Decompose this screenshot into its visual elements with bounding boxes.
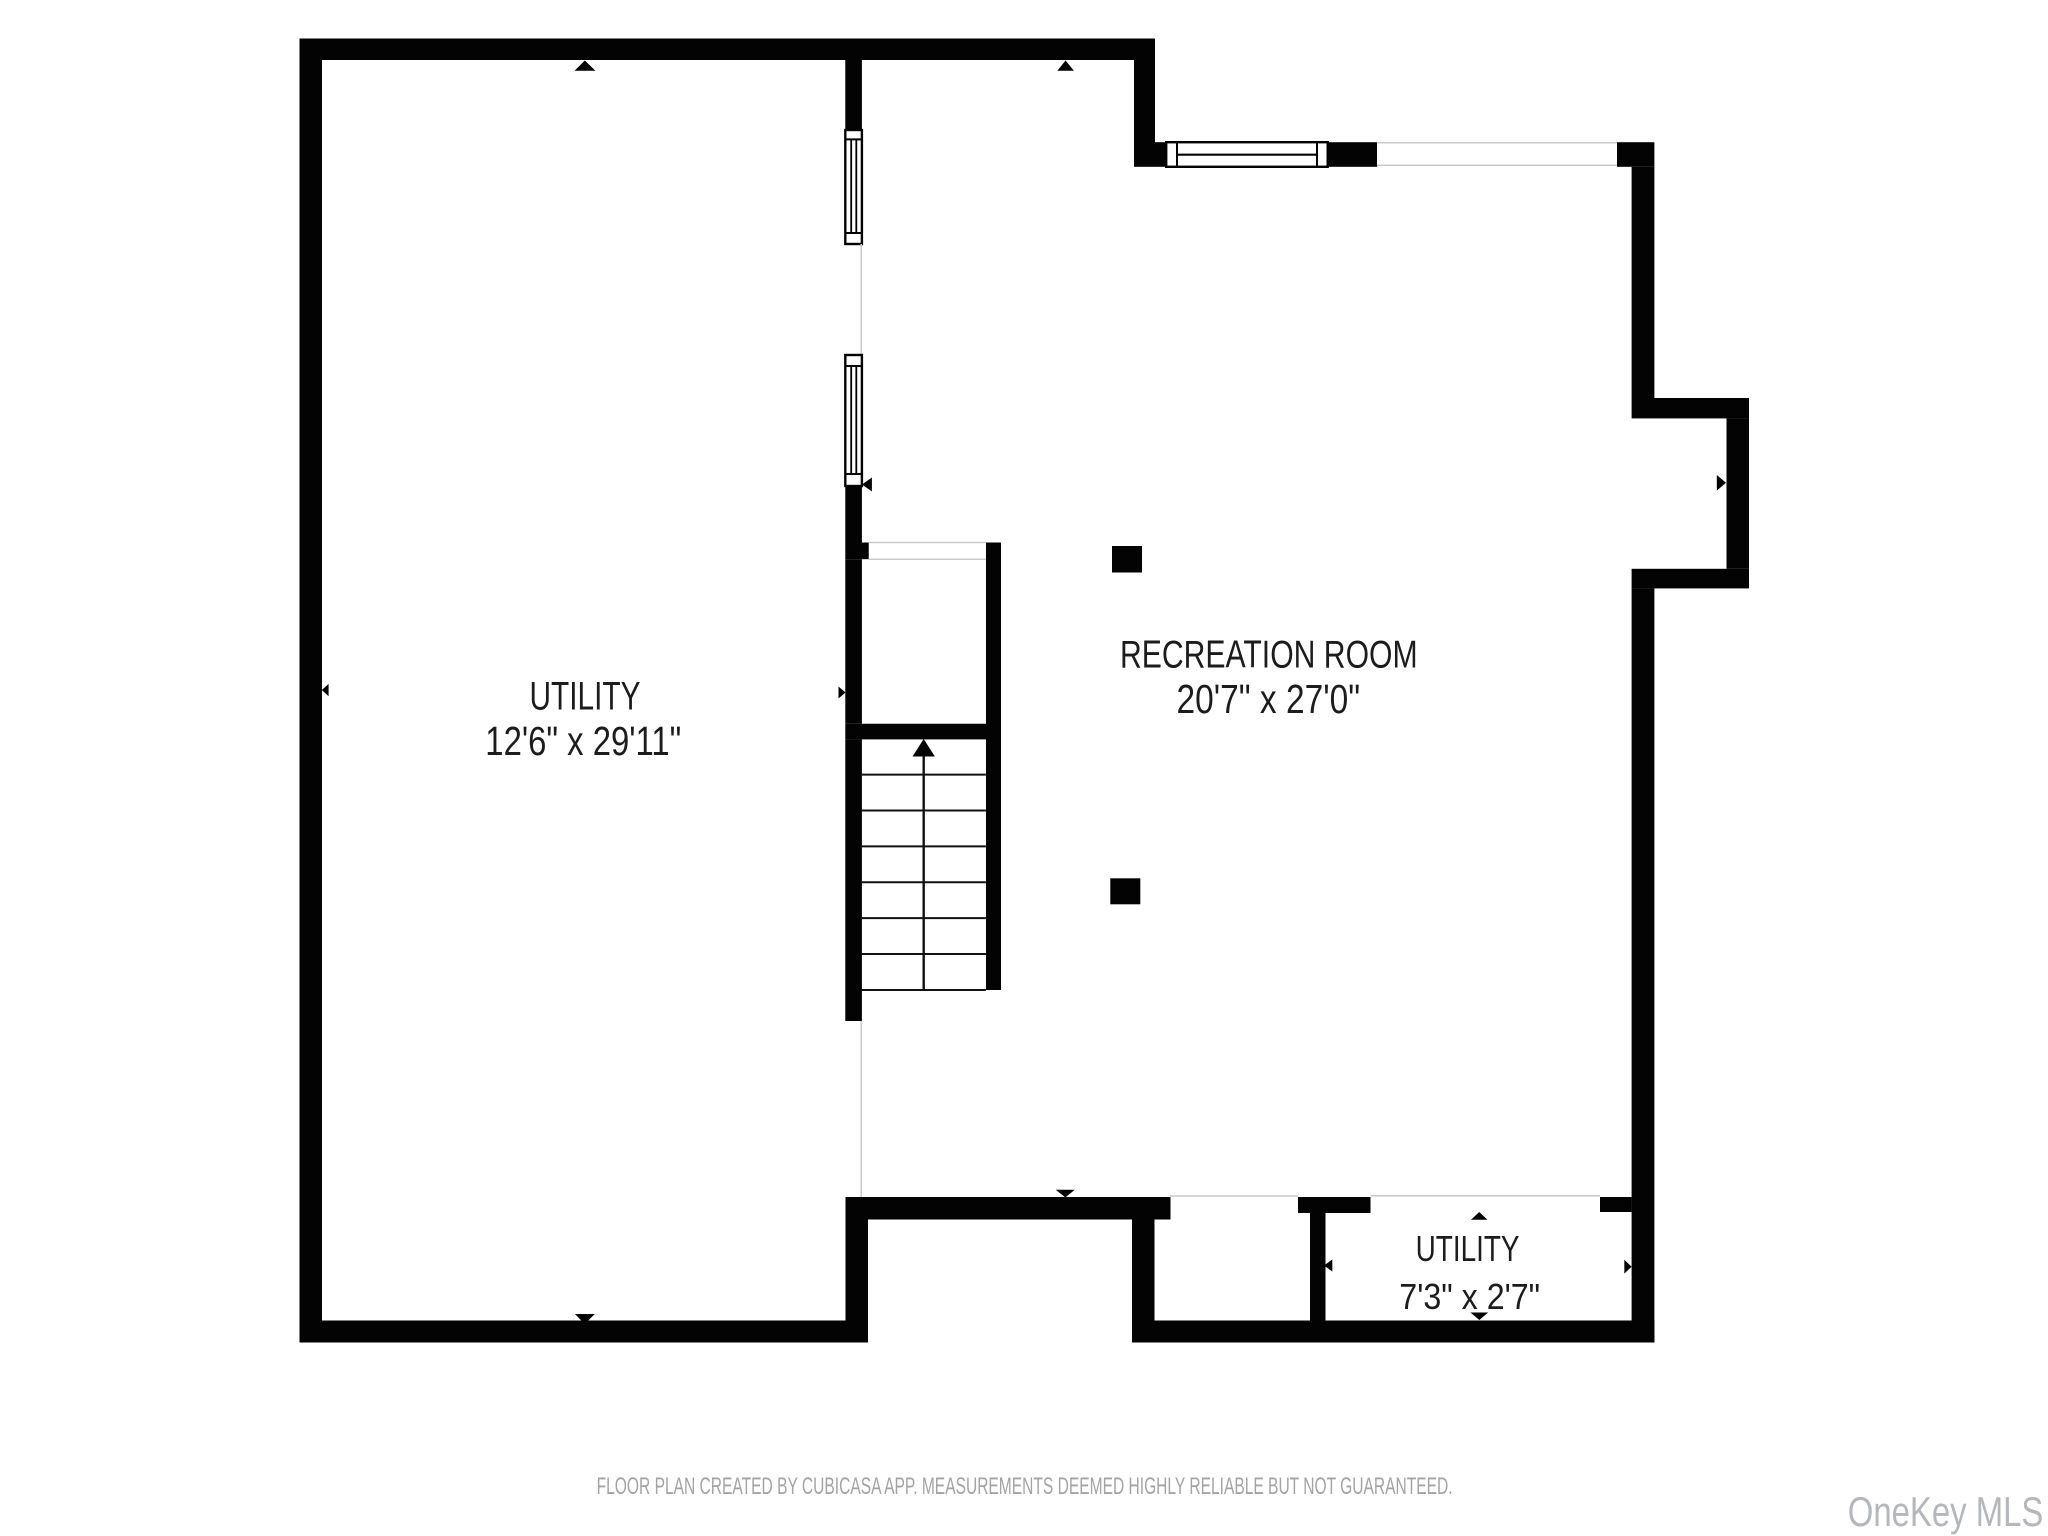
svg-text:UTILITY: UTILITY (1416, 1228, 1520, 1269)
svg-text:UTILITY: UTILITY (530, 675, 641, 719)
svg-text:20'7" x 27'0": 20'7" x 27'0" (1177, 676, 1361, 722)
svg-text:RECREATION ROOM: RECREATION ROOM (1120, 633, 1418, 676)
svg-text:7'3" x 2'7": 7'3" x 2'7" (1399, 1276, 1540, 1317)
svg-text:FLOOR PLAN CREATED BY CUBICASA: FLOOR PLAN CREATED BY CUBICASA APP. MEAS… (597, 1473, 1453, 1500)
svg-text:OneKey MLS: OneKey MLS (1848, 1488, 2044, 1535)
svg-text:12'6" x 29'11": 12'6" x 29'11" (485, 718, 681, 764)
